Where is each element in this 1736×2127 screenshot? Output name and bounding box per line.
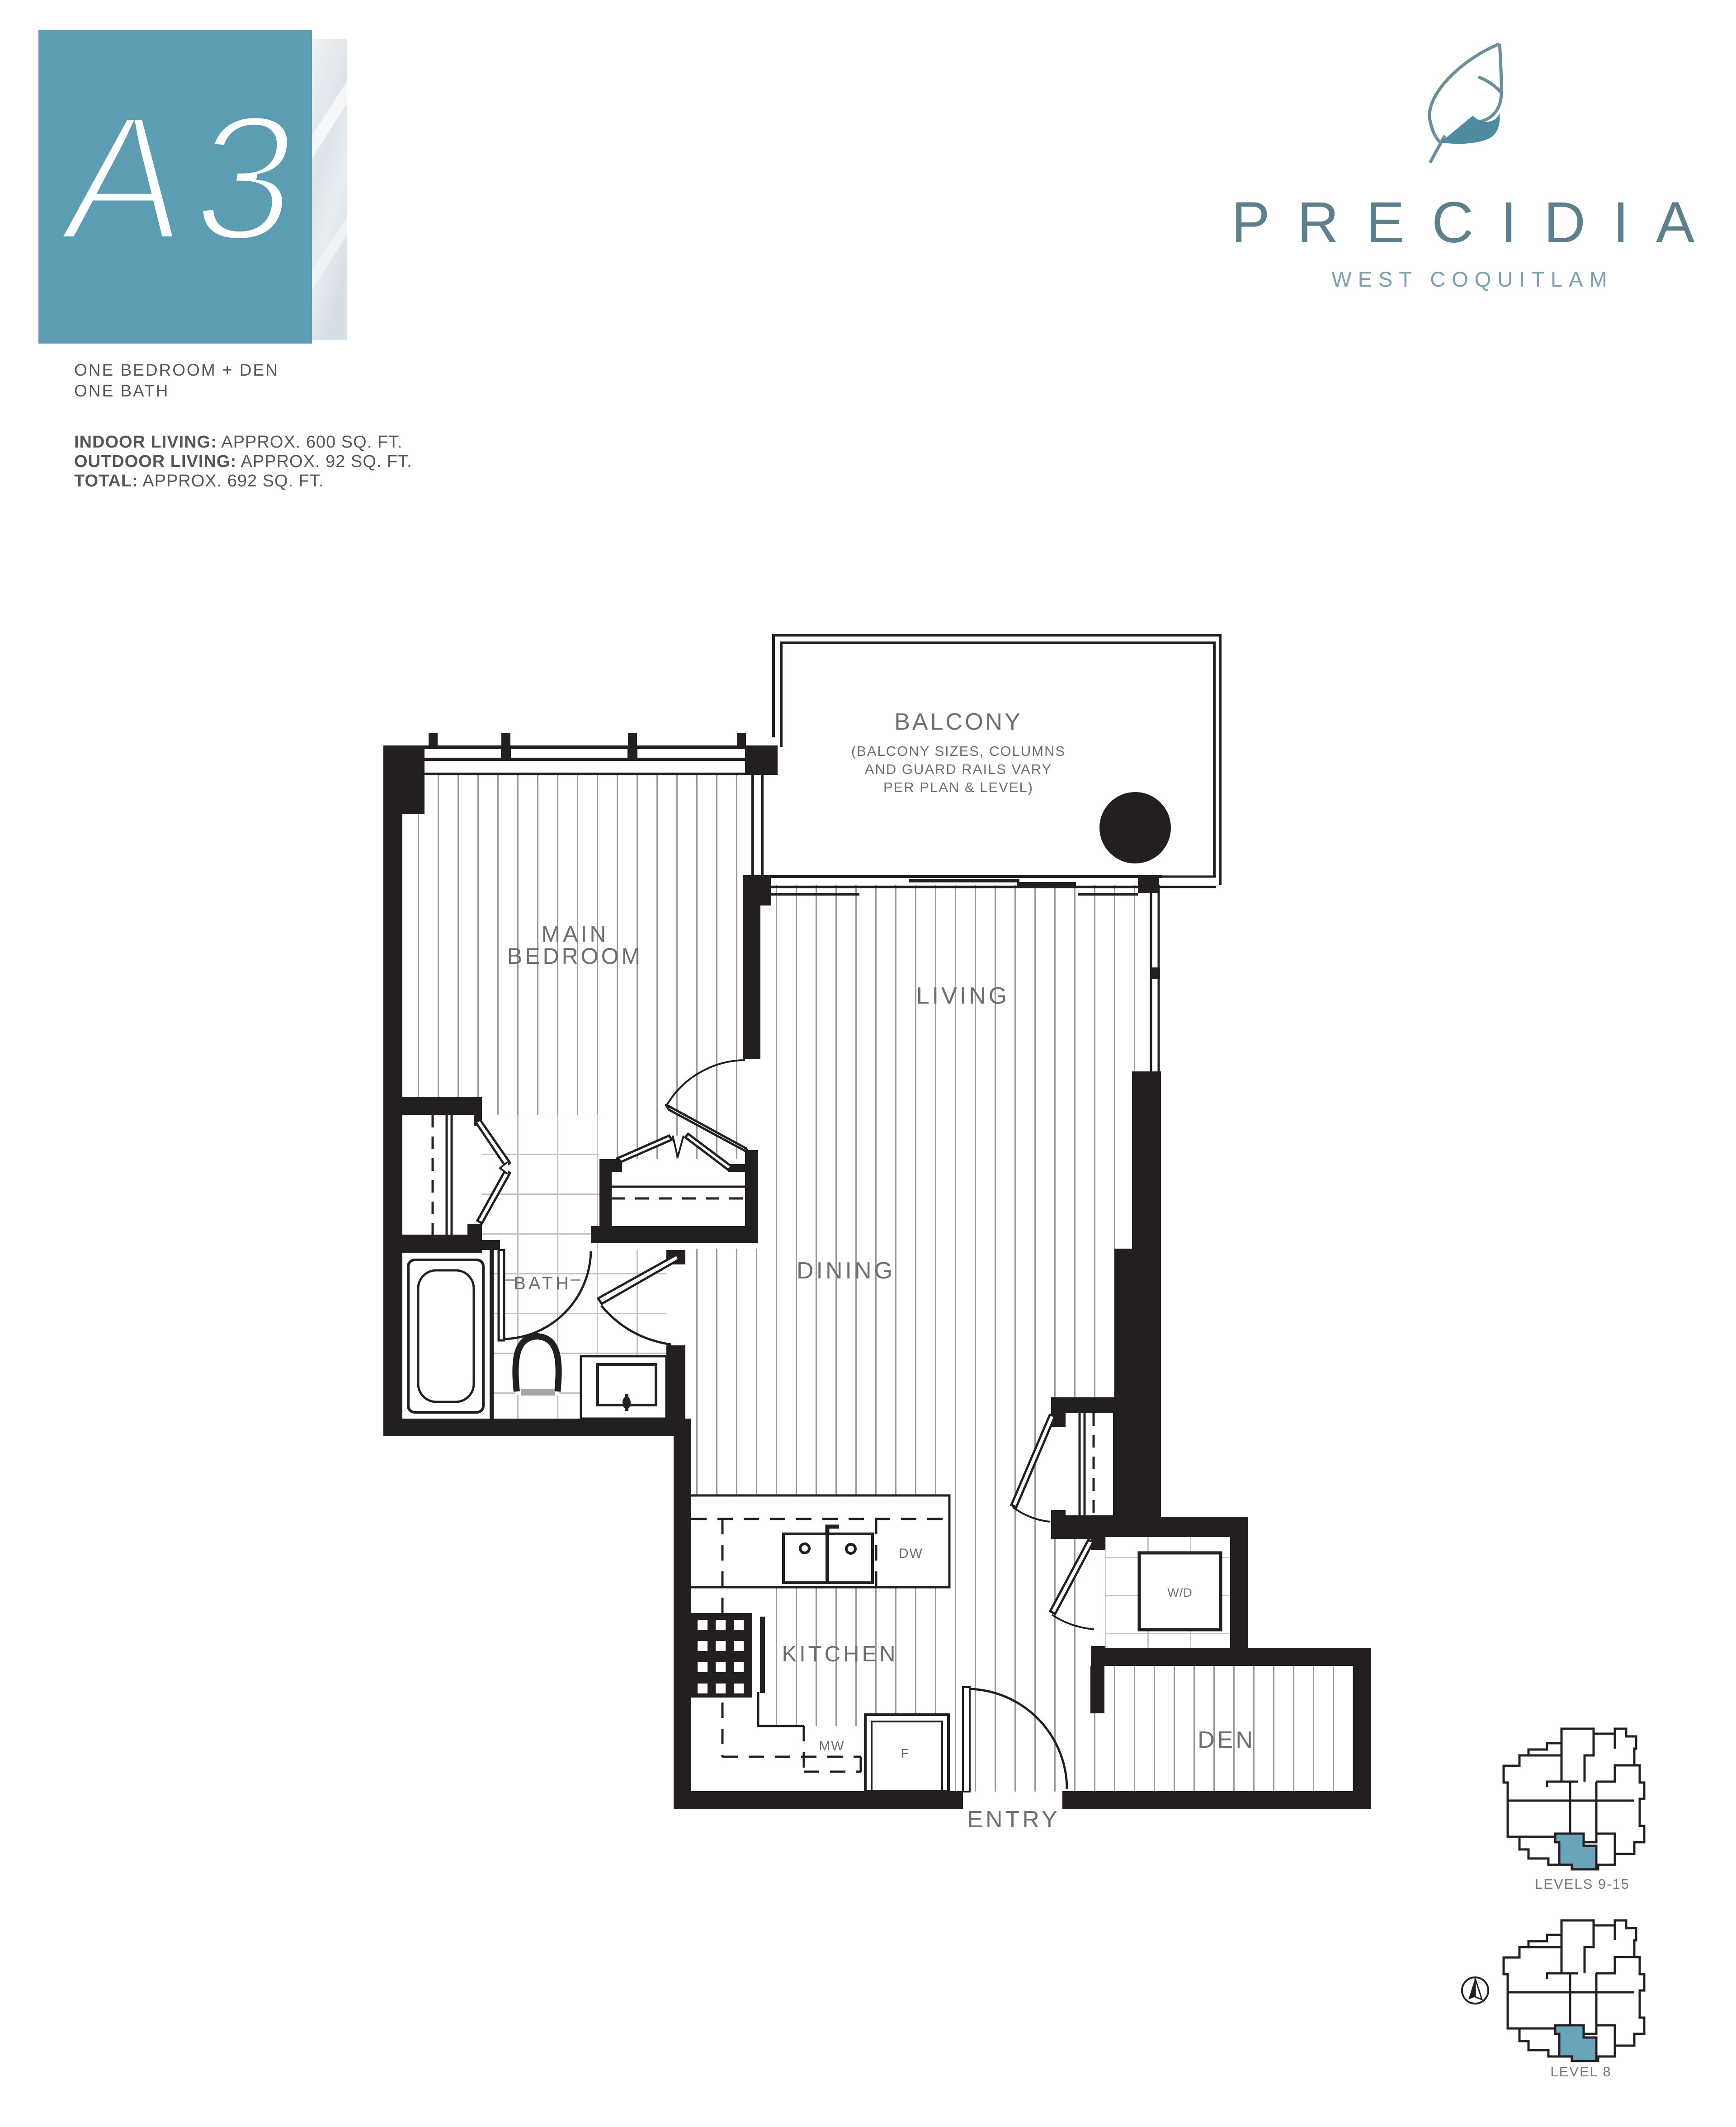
svg-text:OUTDOOR LIVING: APPROX. 92 SQ.: OUTDOOR LIVING: APPROX. 92 SQ. FT.	[74, 452, 412, 471]
svg-text:INDOOR LIVING: APPROX. 600 SQ.: INDOOR LIVING: APPROX. 600 SQ. FT.	[74, 433, 403, 452]
svg-text:BATH: BATH	[514, 1273, 571, 1293]
svg-text:DW: DW	[899, 1546, 923, 1561]
svg-text:A3: A3	[52, 79, 322, 278]
svg-text:DINING: DINING	[797, 1258, 895, 1284]
svg-text:LEVEL 8: LEVEL 8	[1550, 2064, 1611, 2080]
svg-text:TOTAL: APPROX. 692 SQ. FT.: TOTAL: APPROX. 692 SQ. FT.	[74, 472, 324, 490]
svg-text:ENTRY: ENTRY	[967, 1806, 1060, 1833]
svg-text:ONE BATH: ONE BATH	[74, 382, 169, 400]
svg-text:ONE BEDROOM + DEN: ONE BEDROOM + DEN	[74, 361, 279, 379]
svg-text:BEDROOM: BEDROOM	[507, 943, 643, 969]
svg-text:PER PLAN & LEVEL): PER PLAN & LEVEL)	[883, 779, 1033, 795]
svg-text:LIVING: LIVING	[916, 983, 1010, 1009]
svg-text:W/D: W/D	[1167, 1586, 1192, 1599]
svg-text:PRECIDIA: PRECIDIA	[1231, 190, 1722, 255]
svg-text:BALCONY: BALCONY	[894, 709, 1023, 735]
svg-text:KITCHEN: KITCHEN	[782, 1642, 898, 1666]
svg-text:DEN: DEN	[1198, 1727, 1255, 1753]
svg-text:MAIN: MAIN	[542, 921, 609, 947]
svg-text:AND GUARD RAILS VARY: AND GUARD RAILS VARY	[865, 761, 1052, 777]
svg-text:(BALCONY SIZES, COLUMNS: (BALCONY SIZES, COLUMNS	[851, 743, 1066, 759]
svg-text:LEVELS 9-15: LEVELS 9-15	[1535, 1876, 1630, 1892]
svg-text:MW: MW	[819, 1739, 844, 1754]
svg-text:WEST COQUITLAM: WEST COQUITLAM	[1331, 267, 1613, 291]
svg-text:F: F	[901, 1746, 911, 1760]
